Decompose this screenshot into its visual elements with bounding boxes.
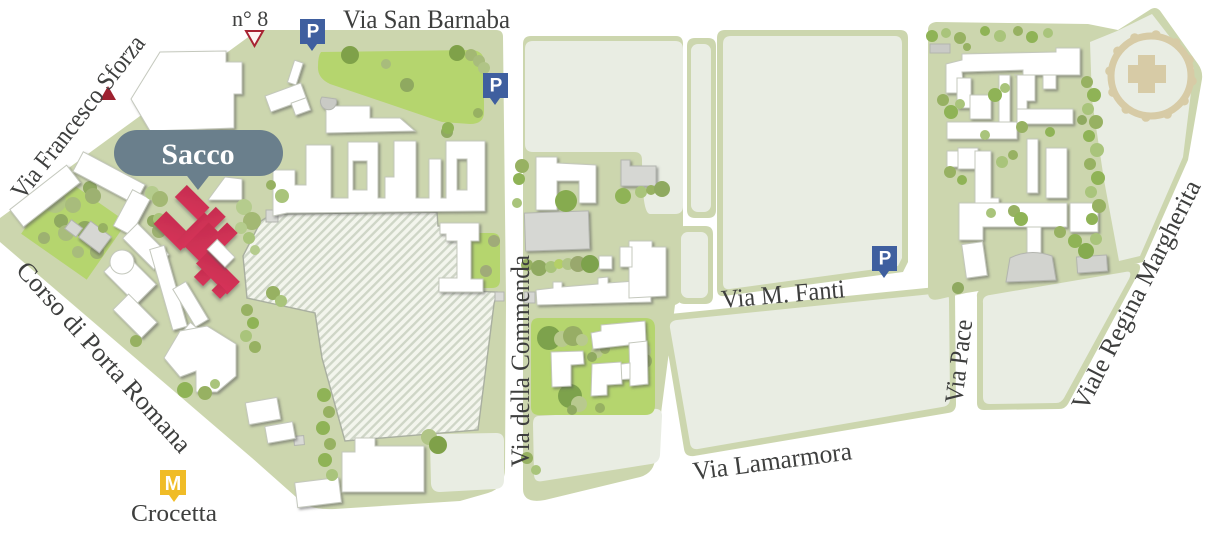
svg-text:Via della Commenda: Via della Commenda	[506, 255, 535, 467]
svg-text:P: P	[490, 76, 503, 97]
svg-text:P: P	[307, 22, 320, 43]
svg-text:P: P	[879, 249, 892, 270]
svg-text:n° 8: n° 8	[232, 6, 268, 31]
svg-text:Via San Barnaba: Via San Barnaba	[343, 5, 510, 34]
svg-text:M: M	[165, 473, 182, 495]
svg-text:Crocetta: Crocetta	[131, 501, 217, 527]
svg-text:Sacco: Sacco	[161, 138, 234, 171]
